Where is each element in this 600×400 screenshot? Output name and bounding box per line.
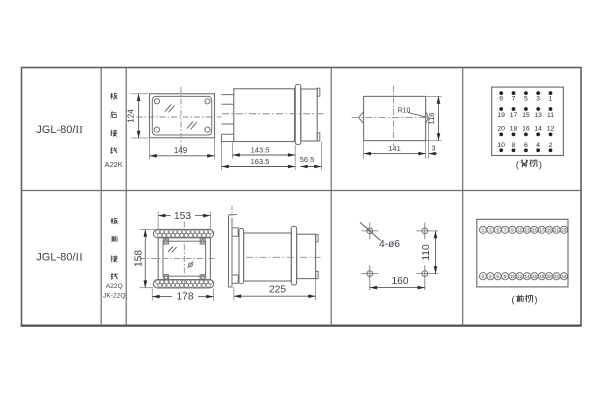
svg-text:11: 11 (547, 112, 554, 119)
svg-text:16: 16 (532, 274, 537, 279)
svg-text:19: 19 (497, 112, 505, 119)
svg-text:20: 20 (547, 274, 552, 279)
svg-text:12: 12 (547, 125, 555, 132)
svg-text:178: 178 (177, 291, 194, 302)
svg-text:A22Q: A22Q (106, 283, 123, 290)
svg-text:5: 5 (524, 96, 528, 103)
svg-text:JGL-80/II: JGL-80/II (36, 251, 83, 263)
svg-text:): ) (539, 159, 542, 170)
svg-text:16: 16 (522, 125, 530, 132)
svg-text:17: 17 (539, 228, 544, 233)
svg-text:A22K: A22K (105, 160, 123, 169)
svg-text:153: 153 (174, 211, 191, 222)
svg-text:18: 18 (510, 125, 518, 132)
svg-text:15: 15 (522, 112, 530, 119)
svg-text:163.5: 163.5 (251, 157, 270, 166)
svg-text:141: 141 (388, 144, 401, 153)
svg-text:14: 14 (534, 125, 542, 132)
svg-text:1: 1 (549, 96, 553, 103)
svg-text:3: 3 (536, 96, 540, 103)
svg-text:160: 160 (392, 276, 409, 287)
svg-text:13: 13 (534, 112, 542, 119)
svg-text:143.5: 143.5 (251, 145, 270, 154)
svg-text:225: 225 (269, 285, 286, 296)
svg-text:10: 10 (510, 274, 515, 279)
svg-text:21: 21 (554, 228, 559, 233)
svg-text:11: 11 (517, 228, 522, 233)
svg-text:13: 13 (525, 228, 530, 233)
svg-text:4-ø6: 4-ø6 (379, 239, 400, 250)
svg-text:20: 20 (497, 125, 505, 132)
svg-text:23: 23 (561, 228, 566, 233)
svg-text:2: 2 (549, 142, 553, 149)
svg-text:24: 24 (561, 274, 566, 279)
svg-text:14: 14 (525, 274, 530, 279)
svg-text:56.5: 56.5 (300, 155, 315, 164)
svg-text:4: 4 (536, 142, 540, 149)
svg-text:124: 124 (127, 109, 136, 123)
svg-text:7: 7 (512, 96, 516, 103)
svg-text:10: 10 (497, 142, 505, 149)
svg-text:22: 22 (554, 274, 559, 279)
svg-text:R10: R10 (398, 108, 411, 115)
svg-text:3: 3 (431, 144, 435, 153)
svg-text:15: 15 (532, 228, 537, 233)
svg-text:JGL-80/II: JGL-80/II (36, 124, 83, 136)
svg-text:6: 6 (524, 142, 528, 149)
svg-text:17: 17 (510, 112, 518, 119)
svg-text:158: 158 (134, 250, 145, 267)
svg-text:19: 19 (547, 228, 552, 233)
svg-text:18: 18 (539, 274, 544, 279)
svg-text:110: 110 (421, 244, 432, 261)
svg-text:): ) (534, 295, 537, 306)
svg-text:JK-22Q: JK-22Q (103, 292, 125, 299)
svg-text:149: 149 (174, 146, 188, 155)
svg-text:12: 12 (517, 274, 522, 279)
svg-text:9: 9 (499, 96, 503, 103)
svg-text:8: 8 (512, 142, 516, 149)
